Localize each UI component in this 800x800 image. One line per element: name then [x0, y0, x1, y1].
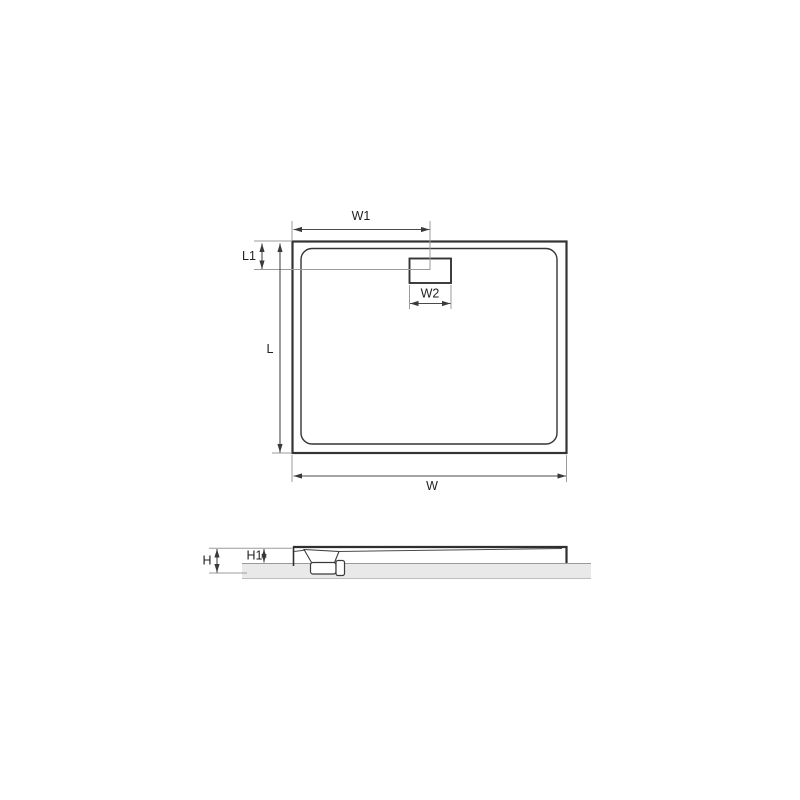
dim-label-w2: W2 [421, 287, 440, 301]
shower-tray-drawing: W1 L1 W2 L W [0, 0, 800, 800]
dim-label-l: L [267, 342, 274, 356]
drain-outlet-stub [336, 561, 345, 576]
drain-trap-body [311, 563, 337, 575]
dim-label-l1: L1 [242, 249, 256, 263]
tray-floor-slope [339, 549, 562, 552]
tray-floor-left [294, 550, 304, 551]
drain-funnel [304, 550, 339, 563]
dim-label-w: W [426, 479, 438, 493]
dim-label-h: H [202, 554, 211, 568]
top-view: W1 L1 W2 L W [242, 209, 566, 493]
dim-label-w1: W1 [352, 209, 371, 223]
drawing-canvas: W1 L1 W2 L W [0, 0, 800, 800]
floor-band [242, 564, 591, 579]
side-view: H H1 [202, 547, 591, 579]
dim-label-h1: H1 [247, 549, 263, 563]
